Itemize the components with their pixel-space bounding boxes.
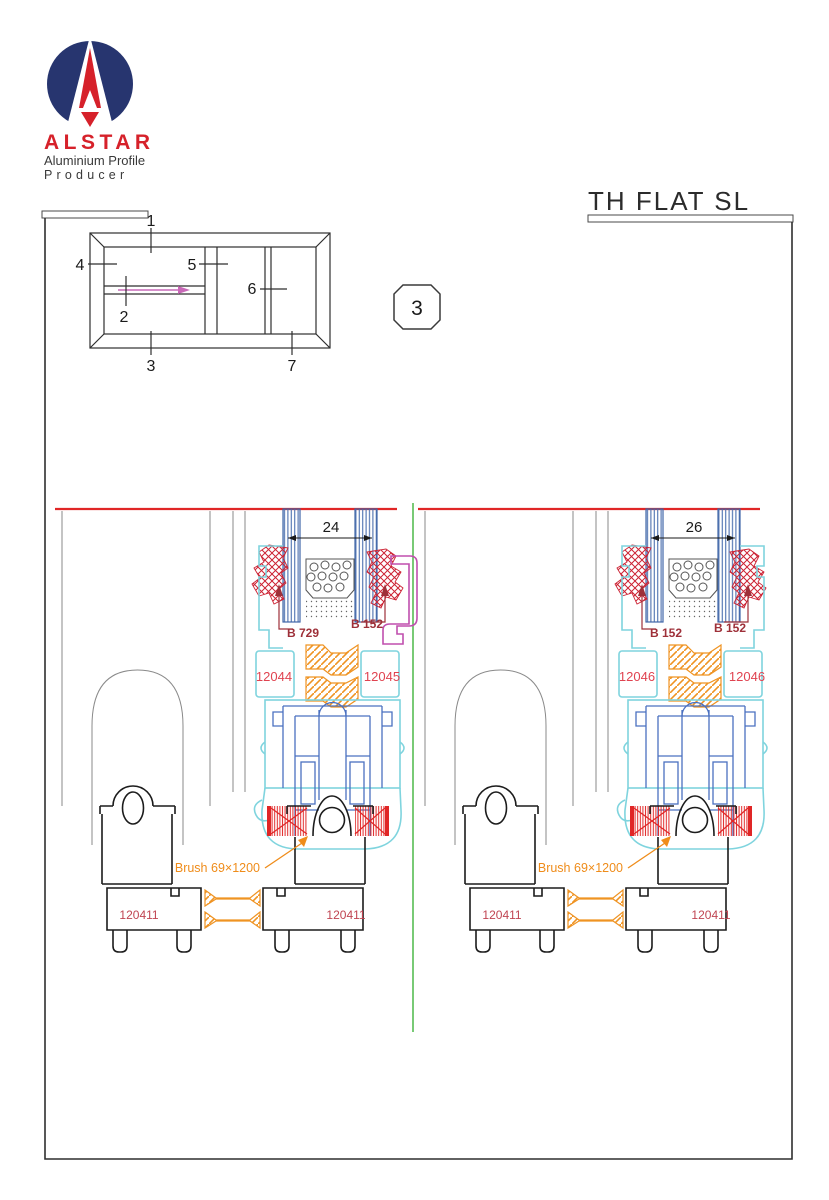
track-number-left: 120411 — [119, 908, 158, 922]
brand-name: ALSTAR — [44, 131, 155, 154]
brand-tagline2: Producer — [44, 168, 128, 182]
glass-width-dimension: 26 — [686, 519, 703, 536]
profile-number-right: 12045 — [364, 669, 400, 684]
track-number-left: 120411 — [482, 908, 521, 922]
section-badge: 3 — [394, 285, 440, 329]
cross-section-detail-left: 24 B 729 B 152 12044 12045 Brush 69×1200… — [55, 509, 417, 952]
schematic-label-3: 3 — [147, 358, 156, 375]
schematic-label-5: 5 — [188, 257, 197, 274]
alstar-logo — [47, 36, 133, 130]
brand-tagline1: Aluminium Profile — [44, 153, 145, 168]
window-schematic: 1 4 5 2 6 3 7 — [76, 213, 330, 375]
glass-width-dimension: 24 — [323, 519, 340, 536]
schematic-label-1: 1 — [147, 213, 156, 230]
profile-number-right: 12046 — [729, 669, 765, 684]
gasket-label-left: B 152 — [650, 626, 682, 640]
drawing-title: TH FLAT SL — [588, 186, 750, 216]
brush-label: Brush 69×1200 — [175, 861, 260, 875]
section-badge-number: 3 — [411, 297, 423, 320]
track-number-right: 120411 — [326, 908, 365, 922]
brush-label: Brush 69×1200 — [538, 861, 623, 875]
schematic-label-6: 6 — [248, 281, 257, 298]
gasket-label-right: B 152 — [351, 617, 383, 631]
schematic-label-4: 4 — [76, 257, 85, 274]
schematic-label-2: 2 — [120, 309, 129, 326]
profile-number-left: 12046 — [619, 669, 655, 684]
cross-section-detail-right: 26 B 152 B 152 12046 12046 Brush 69×1200… — [418, 509, 767, 952]
gasket-label-right: B 152 — [714, 621, 746, 635]
gasket-label-left: B 729 — [287, 626, 319, 640]
track-number-right: 120411 — [691, 908, 730, 922]
profile-number-left: 12044 — [256, 669, 292, 684]
schematic-label-7: 7 — [288, 358, 297, 375]
cad-drawing: ALSTAR Aluminium Profile Producer TH FLA… — [0, 0, 829, 1200]
drawing-sheet: ALSTAR Aluminium Profile Producer TH FLA… — [0, 0, 829, 1200]
